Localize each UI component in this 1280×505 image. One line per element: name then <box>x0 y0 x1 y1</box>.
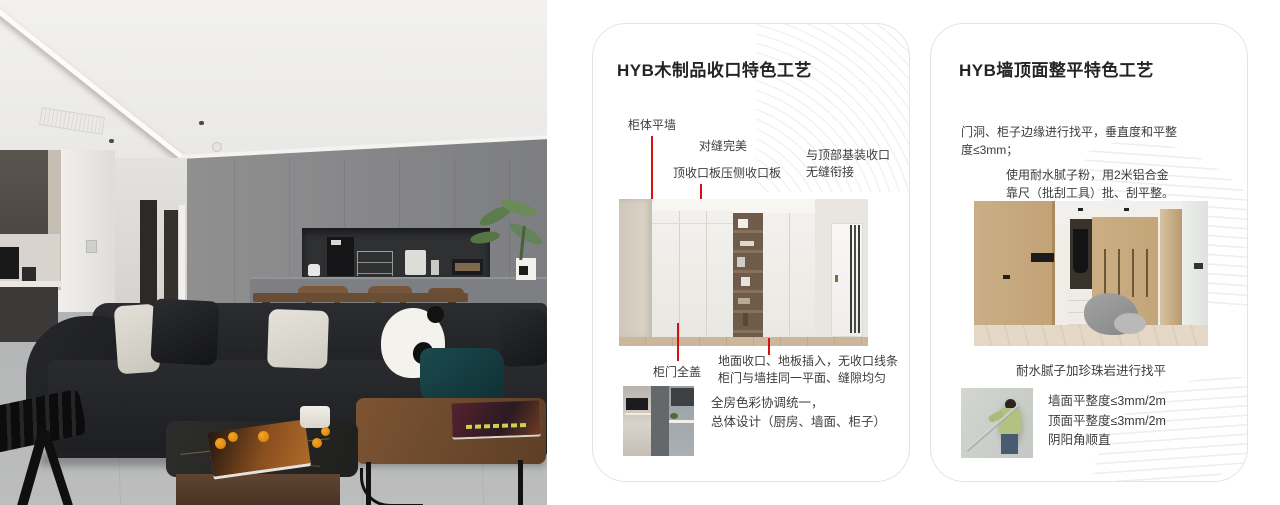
radio-grill <box>455 263 480 271</box>
room-thumbnail-image <box>623 386 694 456</box>
hallway-door-frame <box>179 205 185 315</box>
white-door-stripe <box>858 225 860 333</box>
table-leg <box>518 460 523 505</box>
card-wall-leveling-craft: HYB墙顶面整平特色工艺 门洞、柜子边缘进行找平，垂直度和平整 度≤3mm； 使… <box>930 23 1248 482</box>
closet-slit-handle <box>1104 249 1106 297</box>
closet-slit-handle <box>1132 249 1134 297</box>
magazine <box>451 400 540 437</box>
ceiling-spot <box>1124 208 1129 211</box>
plant-pot-label <box>519 266 528 275</box>
white-door-stripe <box>850 225 852 333</box>
orange-fruit <box>228 432 238 442</box>
spec-list: 墙面平整度≤3mm/2m 顶面平整度≤3mm/2m 阴阳角顺直 <box>1048 392 1166 451</box>
mug <box>300 406 330 428</box>
worker-jeans <box>1001 434 1018 454</box>
light-switch <box>86 240 97 253</box>
wall-fitting <box>1194 263 1203 269</box>
white-door-stripe <box>854 225 856 333</box>
shelf-bottle <box>743 313 748 326</box>
espresso-machine <box>405 250 426 275</box>
callout-floor-note: 地面收口、地板插入，无收口线条 柜门与墙挂同一平面、缝隙均匀 <box>718 353 898 387</box>
counter-appliance <box>22 267 36 281</box>
card-title: HYB木制品收口特色工艺 <box>617 56 812 81</box>
hanging-clothes <box>1073 229 1088 273</box>
page: HYB木制品收口特色工艺 柜体平墙 对缝完美 顶收口板压侧收口板 与顶部基装收口… <box>0 0 1280 505</box>
closet-slit-handle <box>1118 249 1120 297</box>
metal-rack <box>357 251 393 276</box>
thumb-light-strip <box>625 413 651 415</box>
orange-fruit <box>321 427 330 436</box>
grinder <box>431 260 439 275</box>
shelf-item <box>740 241 754 246</box>
image-caption: 耐水腻子加珍珠岩进行找平 <box>974 360 1208 379</box>
panda-ear <box>427 306 444 323</box>
pillow-white <box>267 309 329 369</box>
white-column <box>61 150 115 318</box>
render-left-wall <box>619 199 652 339</box>
spec-ceiling-flatness: 顶面平整度≤3mm/2m <box>1048 412 1166 432</box>
callout-full-cover-door: 柜门全盖 <box>653 364 701 381</box>
pillow-black <box>499 309 547 367</box>
thumb-plant <box>670 413 678 419</box>
open-wood-door-right <box>1160 209 1182 331</box>
wardrobe-render-image <box>619 199 868 346</box>
door-seam <box>706 211 707 339</box>
callout-top-joint: 与顶部基装收口 无缝衔接 <box>806 147 890 181</box>
shelf-item <box>738 298 750 304</box>
thumb-counter <box>669 420 694 423</box>
paragraph-leveling: 门洞、柜子边缘进行找平，垂直度和平整 度≤3mm； <box>961 124 1177 159</box>
shelf-item <box>737 257 745 267</box>
spec-wall-flatness: 墙面平整度≤3mm/2m <box>1048 392 1166 412</box>
thumb-dark-panel <box>651 386 669 456</box>
table-leg-curved <box>360 468 423 505</box>
closet-slit-handle <box>1146 249 1148 297</box>
render-floor <box>619 337 868 346</box>
kitchen-upper-cabinet <box>0 150 48 234</box>
spotlight <box>199 121 204 125</box>
coffee-machine-screen <box>331 240 341 245</box>
callout-line <box>677 323 679 361</box>
table-wood-base <box>176 474 340 505</box>
door-seam <box>789 213 790 339</box>
ceiling-spot <box>1078 208 1083 211</box>
card-summary: 全房色彩协调统一， 总体设计（厨房、墙面、柜子） <box>711 394 886 432</box>
orange-fruit <box>258 431 269 442</box>
hallway-door <box>140 200 157 312</box>
shelf-item <box>738 219 748 228</box>
orange-fruit <box>312 438 322 448</box>
door-handle <box>1003 275 1010 279</box>
living-room-photo <box>0 0 547 505</box>
paragraph-putty: 使用耐水腻子粉，用2米铝合金 靠尺（批刮工具）批、刮平整。 <box>1006 167 1174 202</box>
door-seam <box>679 211 680 339</box>
card-woodwork-craft: HYB木制品收口特色工艺 柜体平墙 对缝完美 顶收口板压侧收口板 与顶部基装收口… <box>592 23 910 482</box>
callout-perfect-seam: 对缝完美 <box>699 138 747 155</box>
thumb-upper-cabinet <box>671 388 694 406</box>
door-handle <box>835 275 838 282</box>
wood-closet-image <box>974 201 1208 346</box>
worker-thumbnail-image <box>961 388 1033 458</box>
spec-corner-straight: 阴阳角顺直 <box>1048 431 1166 451</box>
coffee-machine-built-in <box>0 247 19 279</box>
shelf-line <box>733 213 763 339</box>
orange-fruit <box>215 438 226 449</box>
thumb-tv <box>626 398 648 410</box>
gray-pouf <box>1114 313 1146 334</box>
pillow-black <box>150 298 219 365</box>
spotlight <box>109 139 114 143</box>
callout-cabinet-flush-wall: 柜体平墙 <box>628 117 676 134</box>
kettle <box>308 264 320 276</box>
ceiling-sensor <box>212 142 222 152</box>
hallway-door <box>164 210 178 302</box>
door-control-panel <box>1031 253 1054 262</box>
card-title: HYB墙顶面整平特色工艺 <box>959 56 1154 81</box>
shelf-item <box>741 277 750 286</box>
dining-table <box>253 293 468 302</box>
wardrobe-doors-left <box>652 211 733 339</box>
callout-top-panel: 顶收口板压侧收口板 <box>673 165 781 182</box>
